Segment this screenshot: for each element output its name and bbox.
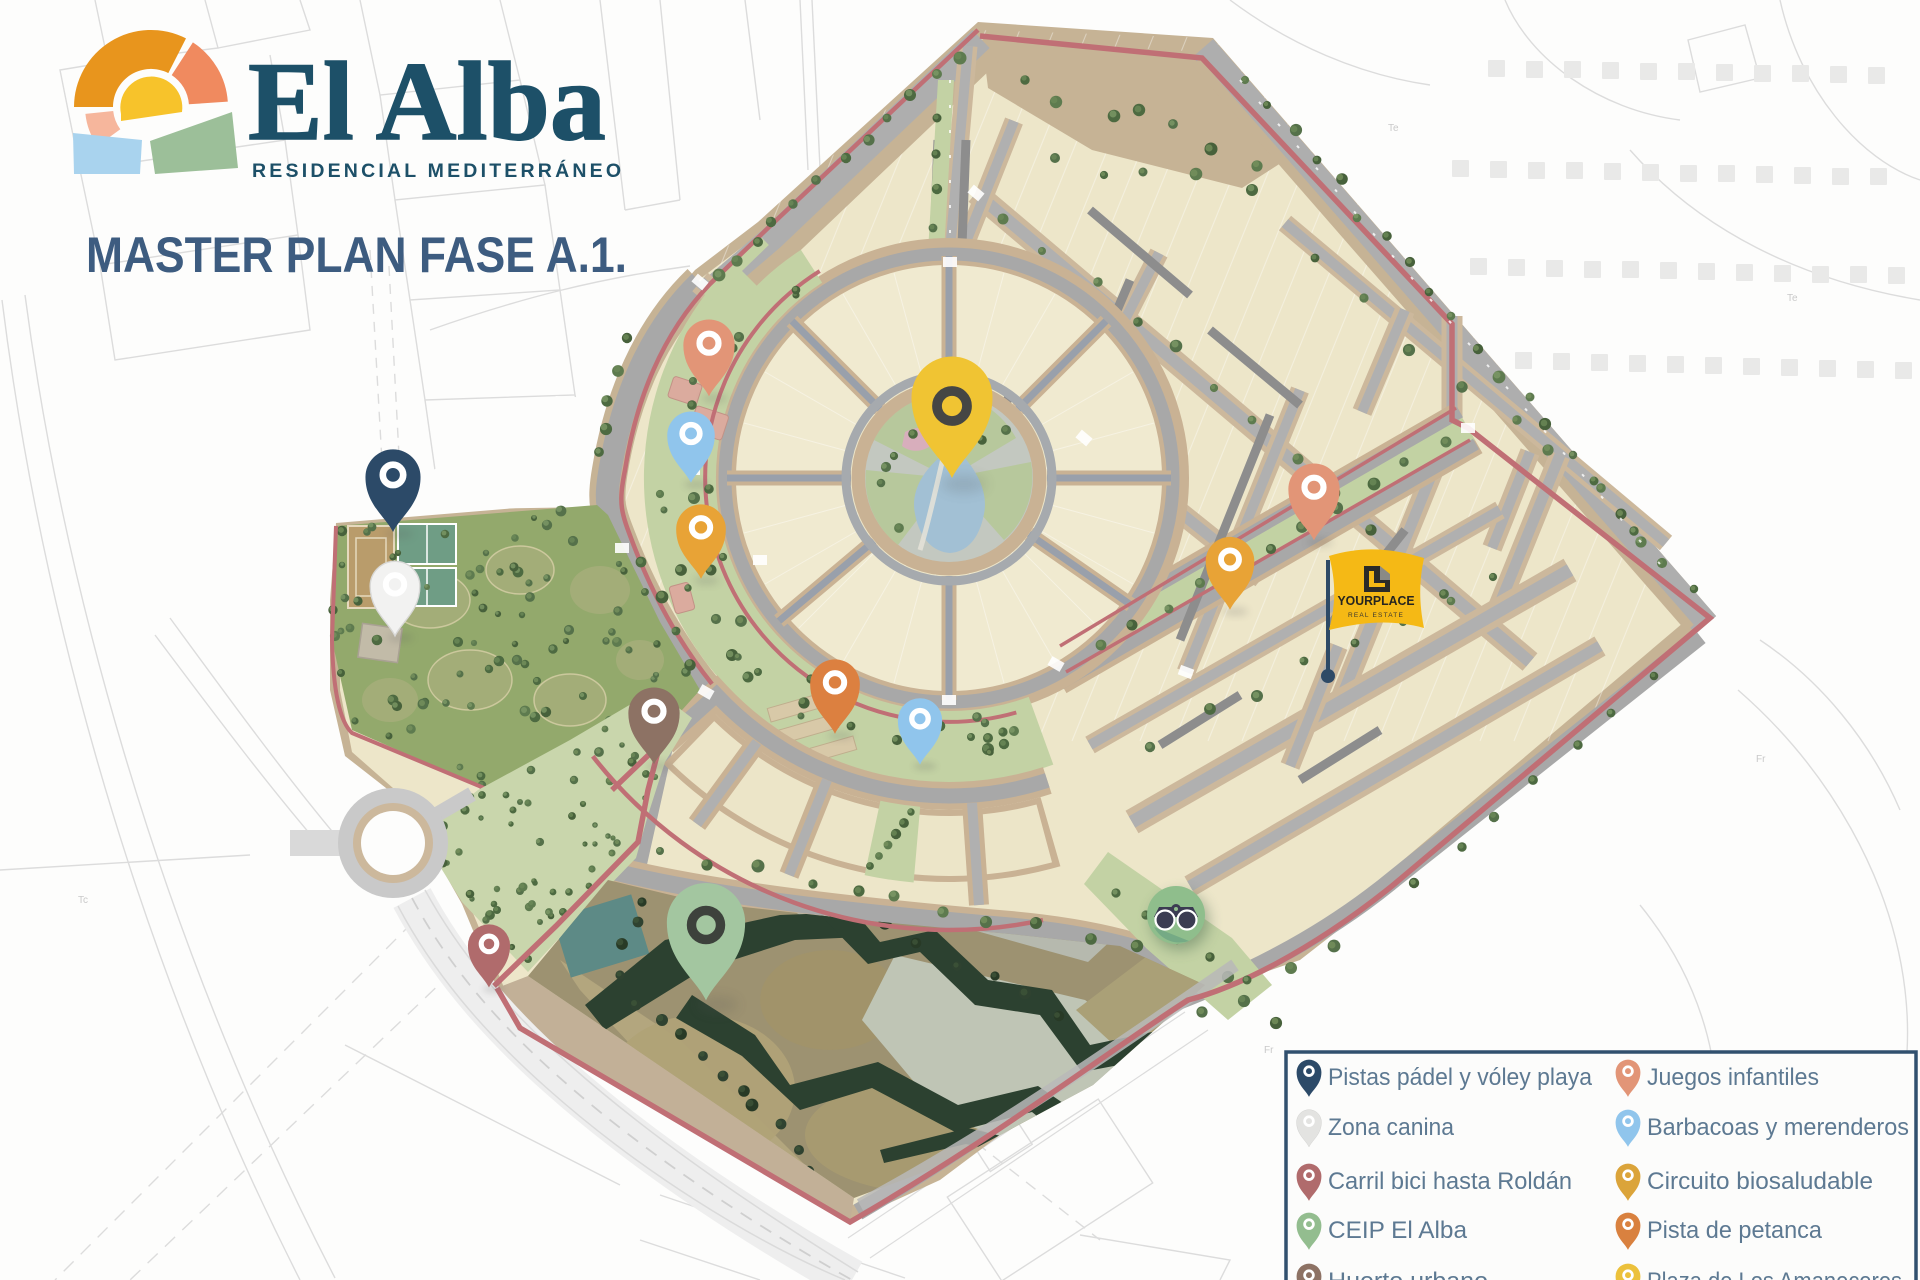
svg-text:Te: Te: [1388, 123, 1399, 134]
svg-text:Juegos infantiles: Juegos infantiles: [1647, 1064, 1819, 1091]
svg-text:YOURPLACE: YOURPLACE: [1338, 594, 1415, 608]
svg-text:Huerto urbano: Huerto urbano: [1328, 1268, 1488, 1280]
svg-text:Plaza de Los Amaneceres: Plaza de Los Amaneceres: [1647, 1268, 1902, 1280]
svg-text:Fr: Fr: [1756, 754, 1766, 765]
svg-text:Carril bici hasta Roldán: Carril bici hasta Roldán: [1328, 1168, 1572, 1195]
svg-text:Pista de petanca: Pista de petanca: [1647, 1217, 1823, 1244]
svg-text:CEIP El Alba: CEIP El Alba: [1328, 1217, 1468, 1244]
svg-text:Zona canina: Zona canina: [1328, 1114, 1455, 1141]
svg-text:RESIDENCIAL MEDITERRÁNEO: RESIDENCIAL MEDITERRÁNEO: [252, 159, 624, 182]
svg-text:Circuito biosaludable: Circuito biosaludable: [1647, 1168, 1873, 1195]
svg-text:El Alba: El Alba: [248, 40, 606, 164]
svg-text:Tc: Tc: [78, 895, 88, 906]
svg-text:MASTER PLAN FASE A.1.: MASTER PLAN FASE A.1.: [86, 227, 627, 283]
svg-text:REAL ESTATE: REAL ESTATE: [1348, 612, 1404, 619]
svg-text:Fr: Fr: [1264, 1045, 1274, 1056]
svg-text:Barbacoas y merenderos: Barbacoas y merenderos: [1647, 1114, 1909, 1141]
svg-text:Te: Te: [1787, 293, 1798, 304]
svg-text:Pistas pádel y vóley playa: Pistas pádel y vóley playa: [1328, 1064, 1593, 1091]
